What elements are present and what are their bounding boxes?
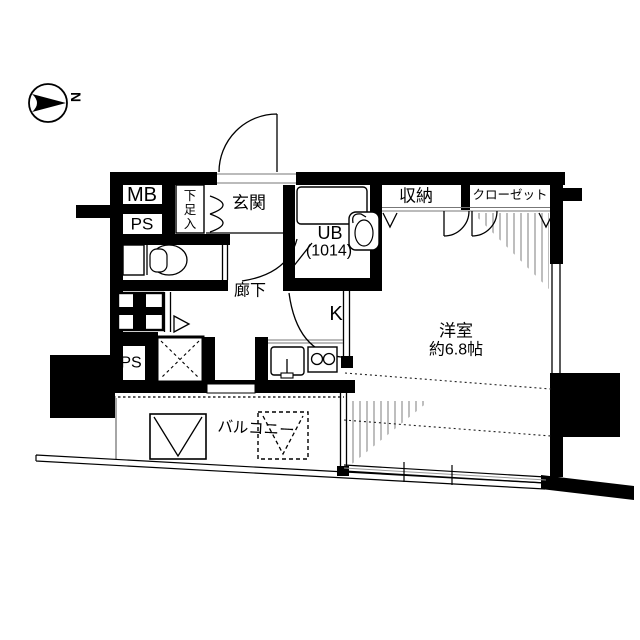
wall-right-pillar (550, 373, 620, 437)
wall-toilet-top (110, 234, 230, 245)
wall-right-stub (563, 188, 582, 201)
wall-partition-cap (341, 356, 353, 368)
label-kitchen: K (329, 303, 343, 325)
label-balcony: バルコニー (217, 418, 295, 439)
label-western-room-size: 約6.8帖 (429, 341, 483, 359)
wall-storage-closet-divider (461, 172, 470, 210)
toilet-door-wall (223, 245, 228, 280)
entrance-door-swing (219, 114, 277, 172)
label-storage: 収納 (399, 187, 433, 206)
wall-top (112, 172, 565, 185)
floor-plan: N (0, 0, 640, 640)
direction-arrow-icon (174, 316, 189, 332)
ceiling-line-dotted (345, 373, 551, 389)
service-window (207, 384, 255, 393)
kitchen-partition (344, 291, 350, 357)
toilet-tank (123, 245, 144, 275)
label-closet: クローゼット (472, 188, 547, 202)
compass: N (29, 84, 84, 122)
wall-right-top (550, 172, 563, 264)
label-western-room: 洋室 (439, 322, 473, 341)
entrance-doorway (217, 114, 296, 185)
wall-ub-bottom (283, 278, 382, 291)
toilet-seat (150, 249, 167, 272)
wall-ub-left (283, 185, 295, 291)
svg-text:入: 入 (184, 217, 197, 231)
label-entrance: 玄関 (232, 194, 266, 213)
shoe-cabinet-doors (210, 196, 223, 232)
washstand-grid-icon (118, 293, 163, 330)
label-pipe-space-lower: PS (120, 355, 141, 372)
stove-burner (324, 354, 335, 365)
wall-toilet-bottom (110, 280, 228, 291)
label-unit-bath: UB (317, 223, 342, 243)
wall-left-block (50, 355, 115, 418)
compass-north-label: N (68, 92, 84, 102)
floor-plan-canvas: N (0, 0, 640, 640)
wall-slanted-bottom (541, 475, 634, 500)
label-hallway: 廊下 (234, 282, 266, 300)
wall-laundry-right (203, 337, 215, 382)
balcony-room-divider (341, 393, 347, 468)
sink-faucet-base (281, 373, 293, 378)
folding-door-mark (383, 213, 397, 227)
wall-right-bottom (550, 437, 563, 477)
ceiling-hatch-bottom-left (347, 401, 429, 468)
outdoor-unit-box (150, 414, 206, 459)
label-pipe-space-upper: PS (131, 215, 154, 234)
wall-left (110, 172, 123, 380)
wall-right-thin (552, 264, 560, 373)
washing-machine-box (157, 337, 203, 382)
counter-edge-line (268, 340, 343, 343)
label-unit-bath-size: (1014) (306, 243, 352, 260)
washbasin-bowl (355, 220, 373, 246)
stove-burner (312, 354, 323, 365)
ceiling-hatch-top-right (473, 213, 549, 289)
storage-door-swing (444, 211, 469, 236)
label-shoe-box: 下 足 入 (184, 189, 197, 231)
svg-text:下: 下 (184, 189, 197, 203)
washstand-divider (165, 292, 171, 332)
svg-text:足: 足 (184, 203, 197, 217)
wall-left-stub (76, 205, 110, 218)
label-meter-box: MB (127, 184, 157, 206)
